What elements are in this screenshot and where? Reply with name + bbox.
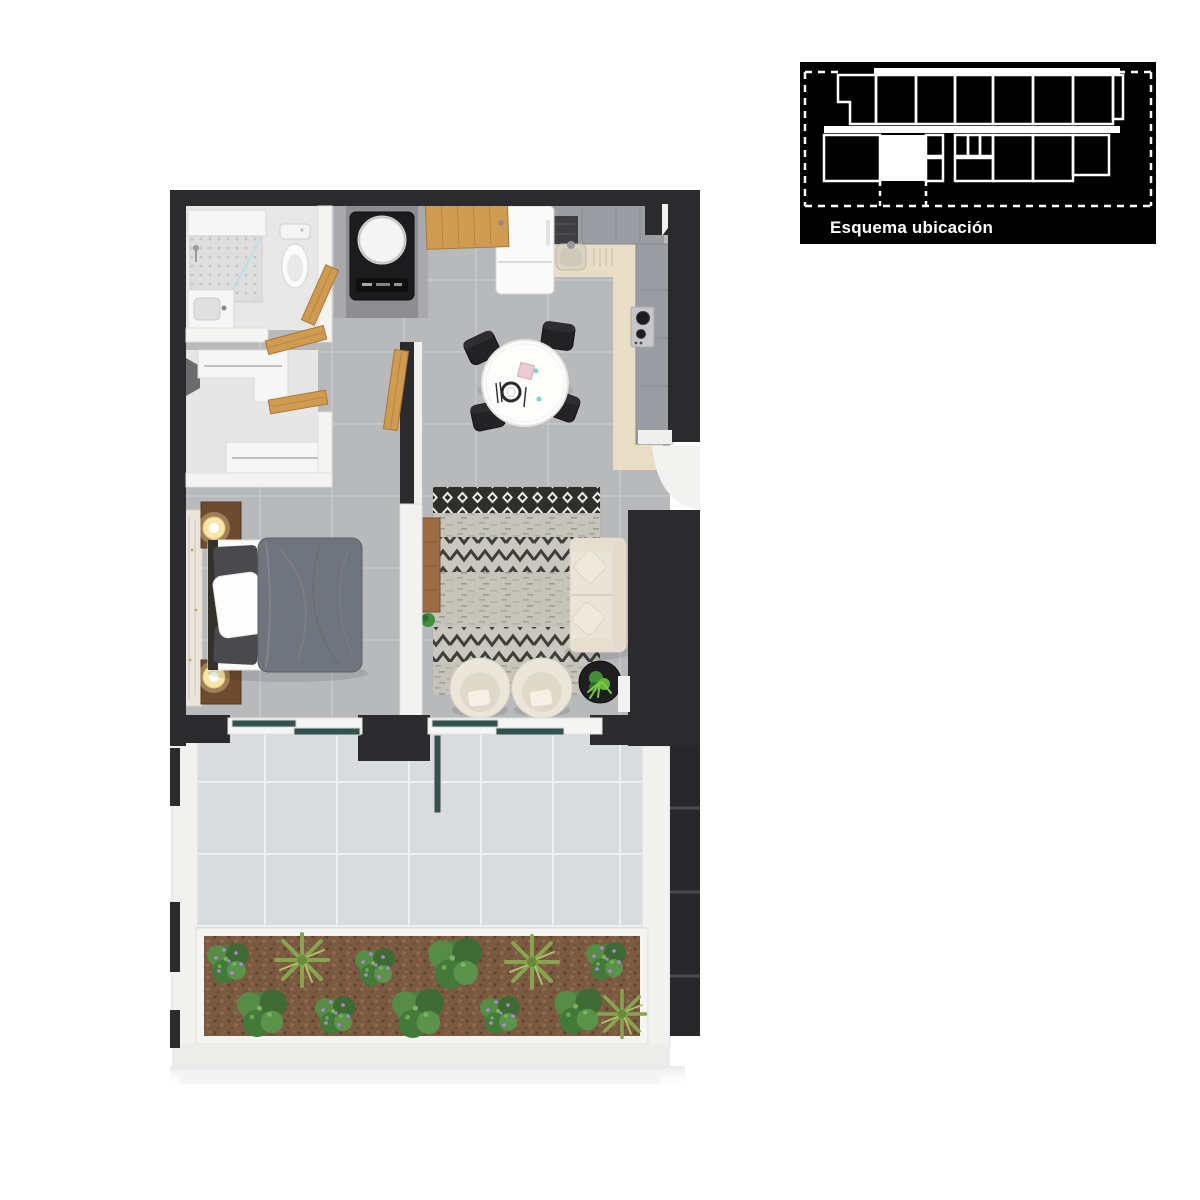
wall-top: [170, 190, 700, 206]
closet-wall-right: [318, 412, 332, 476]
bedroom-living-wall: [400, 504, 422, 716]
building-corridor: [824, 126, 1120, 133]
dining-table: [482, 340, 568, 426]
floorplan-canvas: [170, 190, 700, 1090]
laundry-closet: [334, 206, 428, 318]
napkin: [518, 363, 535, 380]
kitchen-sink: [556, 241, 586, 270]
location-scheme-canvas: [800, 62, 1156, 244]
living-room: [417, 487, 632, 718]
armchair: [450, 658, 510, 718]
walkin-closet: [186, 350, 330, 474]
bedside-lamp: [198, 512, 230, 544]
closet-bedroom-wall: [186, 473, 332, 487]
washing-machine: [350, 212, 414, 300]
bedroom-slider-panel: [232, 720, 296, 727]
wall-right-upper: [668, 190, 700, 442]
armchair: [512, 658, 572, 718]
apartment-floorplan-render: [170, 190, 700, 1090]
sofa: [564, 538, 632, 660]
living-slider-panel: [496, 728, 564, 735]
wall-right-lower: [628, 510, 700, 746]
location-scheme-inset: Esquema ubicación: [800, 62, 1156, 244]
planter-bed: [196, 928, 648, 1044]
bedroom-slider-panel: [294, 728, 360, 735]
cooktop: [631, 307, 654, 347]
duvet: [258, 538, 362, 672]
highlighted-unit: [880, 135, 926, 181]
terrace: [170, 730, 685, 1090]
living-slider-panel: [432, 720, 498, 727]
bathroom: [186, 206, 318, 330]
shower-wall: [188, 210, 266, 236]
double-bed: [208, 538, 368, 682]
open-slider-leaf: [434, 735, 441, 813]
side-table-with-plant: [579, 661, 621, 703]
bathroom-wall-bottom: [186, 328, 268, 342]
bathroom-vanity: [188, 290, 234, 330]
toilet: [280, 224, 310, 288]
inset-label: Esquema ubicación: [830, 218, 993, 238]
wall-left: [170, 190, 186, 746]
inset-background: [800, 62, 1156, 244]
